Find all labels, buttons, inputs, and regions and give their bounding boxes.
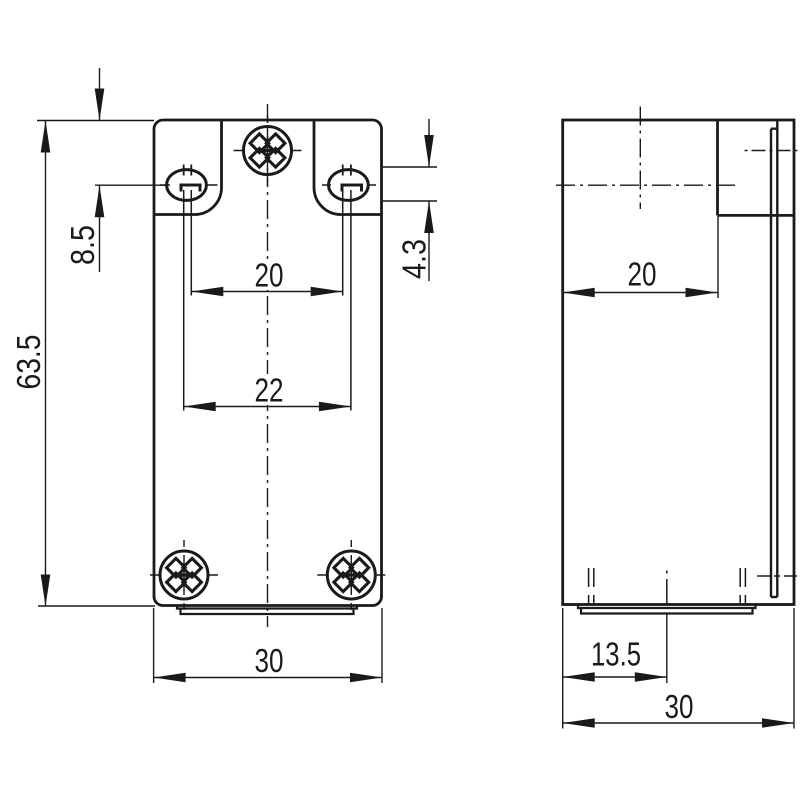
svg-text:30: 30 [665,689,694,726]
svg-text:13.5: 13.5 [591,637,641,674]
svg-text:20: 20 [628,257,657,294]
svg-text:8.5: 8.5 [65,225,102,265]
svg-text:30: 30 [255,643,284,680]
svg-text:63.5: 63.5 [11,335,48,390]
svg-text:22: 22 [255,373,284,410]
svg-text:20: 20 [255,258,284,295]
svg-text:4.3: 4.3 [397,239,434,279]
